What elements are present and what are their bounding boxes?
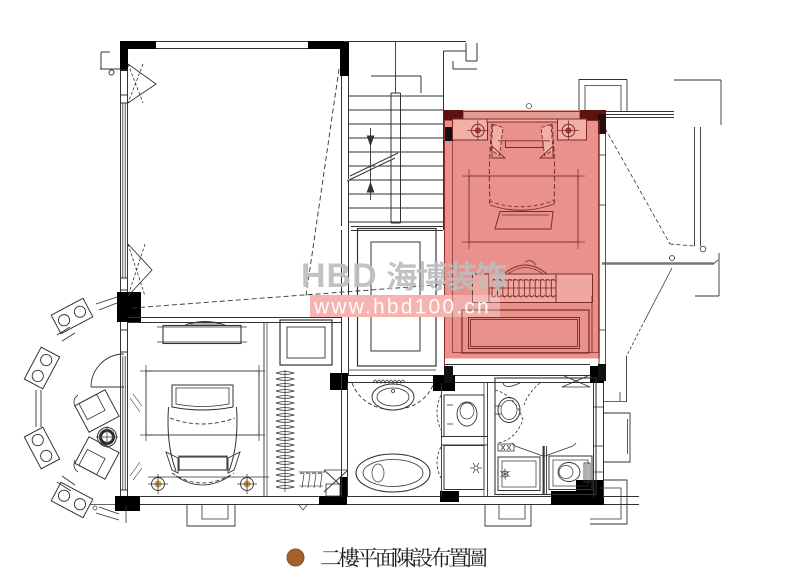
svg-text:www.hbd100.cn: www.hbd100.cn <box>313 296 491 319</box>
svg-text:HBD: HBD <box>301 257 378 295</box>
